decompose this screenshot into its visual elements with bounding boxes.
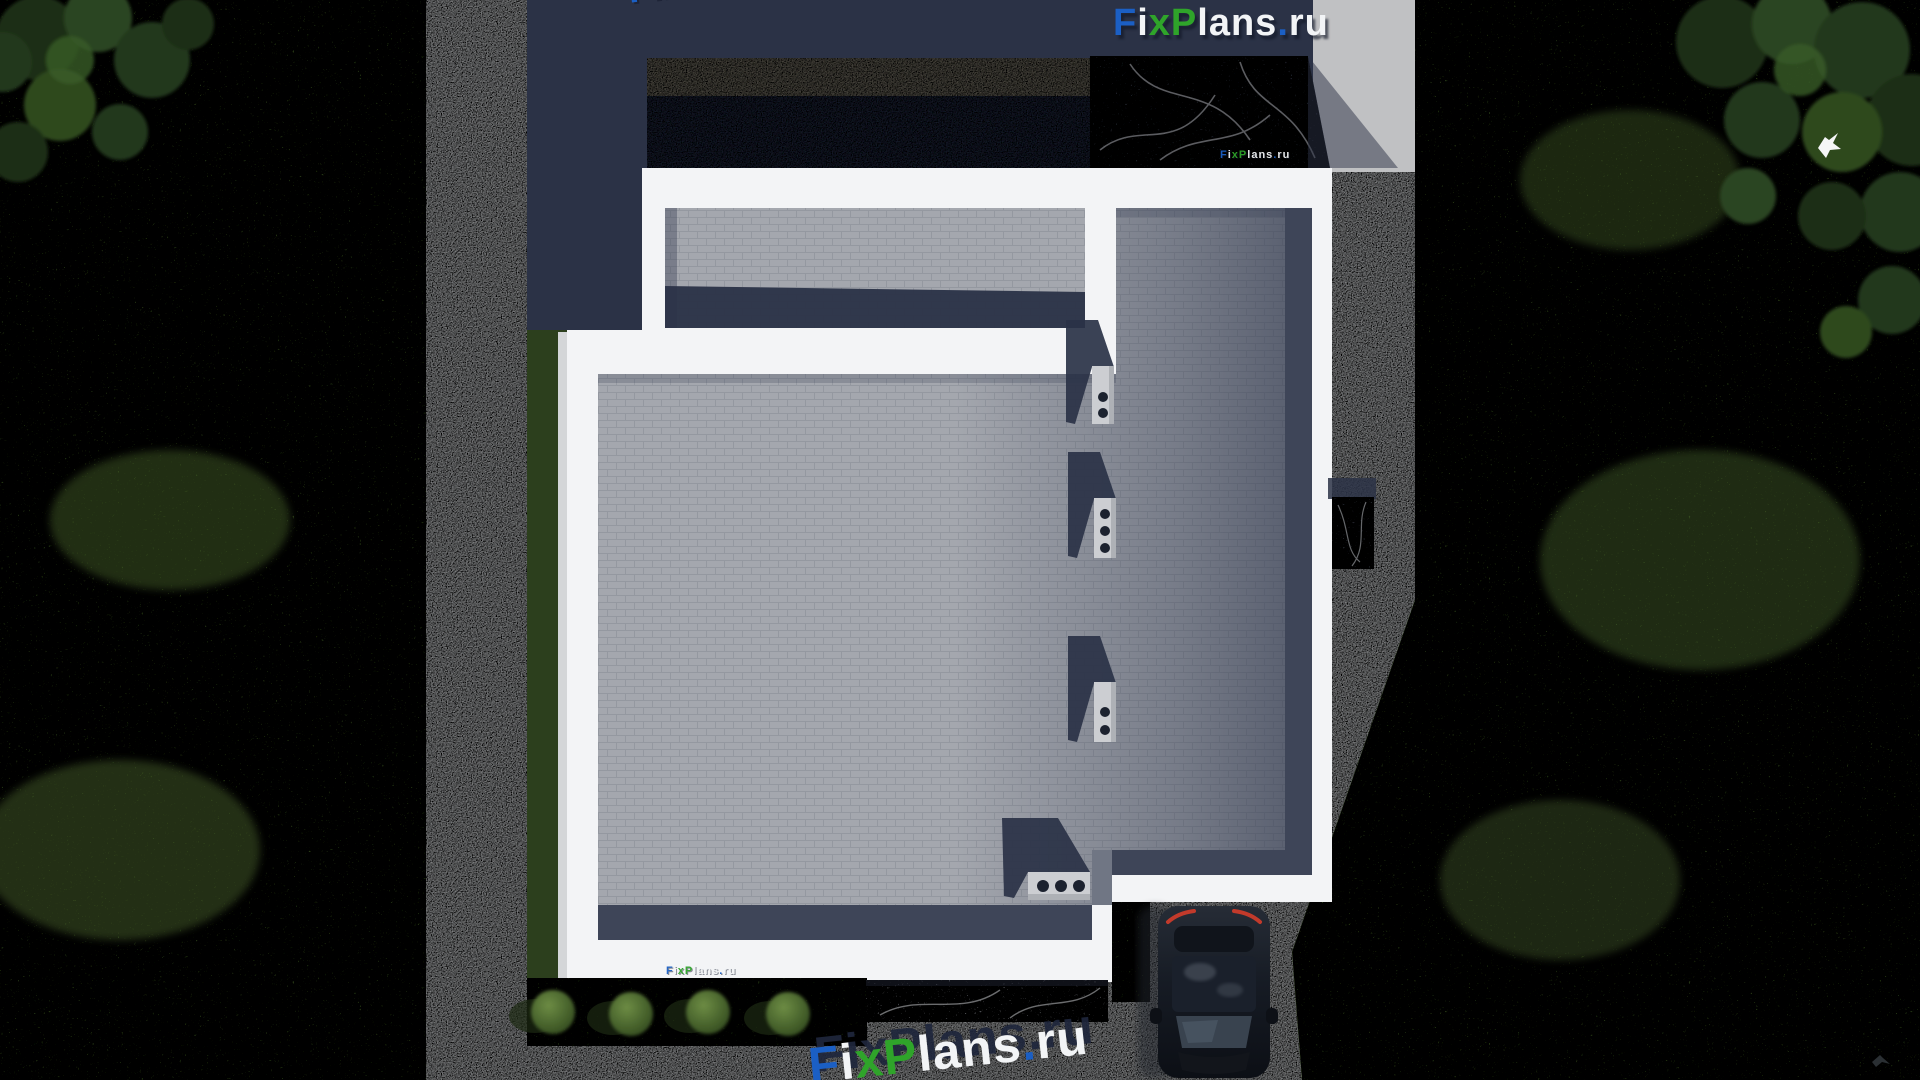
bush-foliage (531, 990, 575, 1034)
watermark-letter: lans (915, 1016, 1024, 1080)
watermark-letter: lans (1247, 149, 1273, 161)
pad-edge-shadow (866, 980, 1108, 986)
logo-letter: x (1149, 2, 1171, 44)
watermark-letter: ru (723, 965, 736, 977)
grass-patch (1540, 450, 1860, 670)
side-entrance-pad (1328, 478, 1376, 569)
fixplans-logo: FixPlans.ru (1113, 4, 1329, 42)
vent (1055, 880, 1067, 892)
grass-patch (1520, 110, 1740, 250)
watermark-letter: F (1220, 149, 1228, 161)
logo-letter: . (1277, 2, 1289, 44)
roof-reflection (1217, 983, 1243, 997)
roof-bottom-edge-shadow (598, 905, 1092, 940)
watermark-letter: P (881, 1027, 921, 1080)
chimney-side (1111, 682, 1116, 742)
vent (1100, 509, 1110, 519)
watermark-letter: P (1239, 149, 1247, 161)
grass-patch (50, 450, 290, 590)
watermark-letter: x (1232, 149, 1239, 161)
rear-annex-roof (647, 58, 1090, 170)
watermark-letter: lans (693, 965, 719, 977)
car-roof (1172, 956, 1256, 1012)
lower-roof-cast-shadow (665, 286, 1085, 328)
lower-roof-section (665, 208, 1085, 328)
left-ledge (558, 332, 567, 980)
watermark-letter: F (666, 965, 674, 977)
watermark-letter: P (685, 965, 693, 977)
vent (1100, 526, 1110, 536)
logo-letter: lans (1197, 2, 1277, 44)
watermark-micro: FixPlans.ru (1220, 150, 1290, 161)
chimney-side (1111, 498, 1116, 558)
vent (1037, 880, 1049, 892)
logo-letter: i (1137, 2, 1149, 44)
vent (1098, 392, 1108, 402)
car (1138, 906, 1278, 1078)
aerial-scene (0, 0, 1920, 1080)
house (558, 168, 1332, 982)
pad-stone (1332, 497, 1374, 569)
vent (1098, 408, 1108, 418)
stone-slab-surface (1090, 56, 1330, 168)
logo-letter: P (1171, 2, 1197, 44)
roof-bottomright-edge-shadow (1112, 850, 1312, 875)
vent (1100, 707, 1110, 717)
watermark-letter: x (678, 965, 685, 977)
pad-shadow (1328, 478, 1376, 499)
chimney-side (1028, 894, 1090, 900)
vent (1100, 543, 1110, 553)
windshield-reflection (1182, 1020, 1218, 1043)
roof-right-edge-shadow (1285, 208, 1312, 850)
rear-window (1174, 926, 1254, 952)
roof-inner-edge-shadow (1116, 208, 1285, 217)
grass-patch (1440, 800, 1680, 960)
roof-inner-edge-shadow (598, 374, 1116, 383)
annex-dark-roof (647, 96, 1090, 170)
side-mirror-left (1150, 1008, 1162, 1024)
front-garden (509, 978, 867, 1046)
bush-foliage (686, 990, 730, 1034)
bush-foliage (609, 992, 653, 1036)
watermark-letter: ru (1033, 1009, 1091, 1070)
side-mirror-right (1266, 1008, 1278, 1024)
annex-parapet-band (647, 58, 1090, 96)
logo-letter: ru (1289, 2, 1329, 44)
chimney-side (1109, 366, 1114, 424)
watermark-letter: ru (1277, 149, 1290, 161)
vent (1073, 880, 1085, 892)
roof-reflection (1184, 963, 1216, 981)
site-plan-render: FixPlans.ru FixPlans.ru FixPlans.ru FixP… (0, 0, 1920, 1080)
logo-letter: F (1113, 2, 1137, 44)
roof-step-shadow (1092, 850, 1112, 905)
bush-foliage (766, 992, 810, 1036)
vent (1100, 725, 1110, 735)
watermark-micro: FixPlans.ru (666, 966, 736, 977)
